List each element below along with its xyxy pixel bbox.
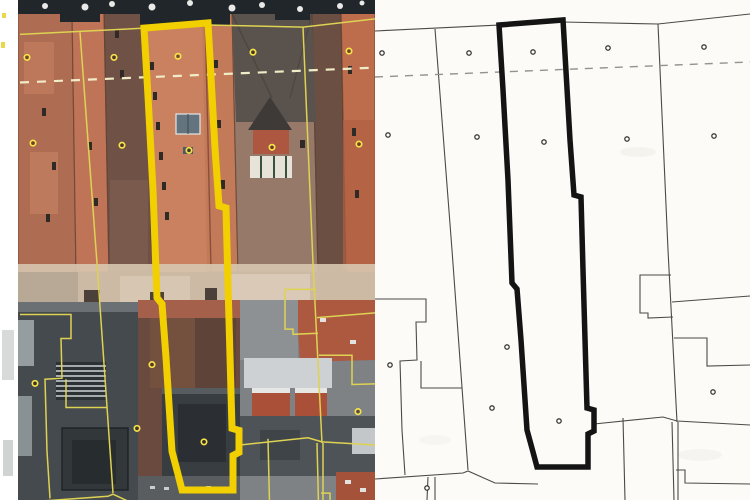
parcel-point-marker <box>355 409 360 414</box>
parcel-boundary-line <box>672 422 674 500</box>
parcel-point-marker <box>711 390 715 394</box>
parcel-boundary-line <box>317 311 375 317</box>
parcel-point-marker <box>386 133 390 137</box>
parcel-boundary-line <box>20 315 71 499</box>
cadastre-comparison-figure <box>0 0 750 500</box>
parcel-boundary-line <box>435 29 468 470</box>
cadastral-map-panel <box>375 0 750 500</box>
parcel-point-marker <box>201 439 206 444</box>
highlighted-parcel-outline[interactable] <box>144 23 239 490</box>
parcel-point-marker <box>557 419 561 423</box>
parcel-point-marker <box>356 141 361 146</box>
parcel-boundary-line <box>658 24 677 422</box>
parcel-point-marker <box>346 48 351 53</box>
parcel-point-marker <box>531 50 535 54</box>
parcel-point-marker <box>625 137 629 141</box>
parcel-boundary-line <box>317 443 319 500</box>
parcel-point-marker <box>175 54 180 59</box>
parcel-boundary-line <box>20 494 183 500</box>
parcel-boundary-line <box>640 275 673 318</box>
parcel-point-marker <box>30 140 35 145</box>
parcel-point-marker <box>149 362 154 367</box>
parcel-point-marker <box>186 148 191 153</box>
parcel-boundary-line <box>285 289 318 334</box>
parcel-boundary-line <box>623 418 625 500</box>
parcel-boundary-line <box>321 493 375 500</box>
parcel-boundary-line <box>66 379 107 407</box>
dashed-boundary-line <box>20 67 375 83</box>
highlighted-parcel-outline[interactable] <box>499 20 594 467</box>
dashed-boundary-line <box>375 62 750 77</box>
parcel-point-marker <box>505 345 509 349</box>
parcel-point-marker <box>24 55 29 60</box>
parcel-boundary-line <box>239 438 375 446</box>
parcel-point-marker <box>119 143 124 148</box>
parcel-point-marker <box>712 134 716 138</box>
parcel-boundary-line <box>421 361 462 388</box>
parcel-boundary-line <box>268 439 270 500</box>
parcel-point-marker <box>490 406 494 410</box>
parcel-point-marker <box>702 45 706 49</box>
parcel-point-marker <box>269 145 274 150</box>
parcel-point-marker <box>425 486 429 490</box>
cadastre-overlay-left <box>0 0 375 500</box>
parcel-boundary-line <box>303 27 322 443</box>
parcel-point-marker <box>606 46 610 50</box>
parcel-point-marker <box>250 50 255 55</box>
parcel-boundary-line <box>80 32 113 493</box>
parcel-boundary-line <box>672 296 750 302</box>
parcel-point-marker <box>542 140 546 144</box>
parcel-boundary-line <box>375 299 426 475</box>
parcel-boundary-line <box>674 338 750 366</box>
orthophoto-panel <box>0 0 375 500</box>
parcel-boundary-line <box>676 470 750 484</box>
parcel-point-marker <box>380 51 384 55</box>
parcel-point-marker <box>134 426 139 431</box>
parcel-point-marker <box>32 381 37 386</box>
parcel-point-marker <box>111 55 116 60</box>
cadastre-overlay-right <box>375 0 750 500</box>
parcel-point-marker <box>467 51 471 55</box>
parcel-point-marker <box>388 363 392 367</box>
parcel-point-marker <box>475 135 479 139</box>
parcel-boundary-line <box>375 471 538 484</box>
parcel-boundary-line <box>319 355 375 384</box>
